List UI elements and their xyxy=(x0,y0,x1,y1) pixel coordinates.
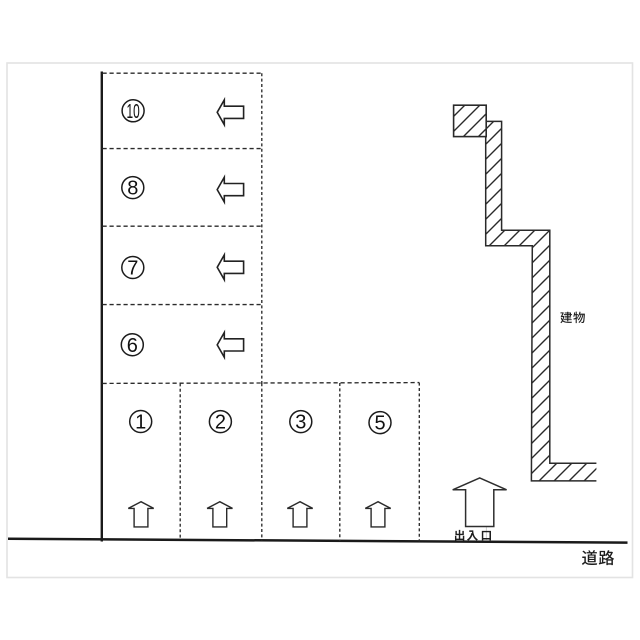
svg-text:2: 2 xyxy=(215,412,226,434)
svg-text:5: 5 xyxy=(374,413,385,435)
svg-text:10: 10 xyxy=(127,101,140,123)
svg-text:8: 8 xyxy=(127,178,138,200)
svg-text:1: 1 xyxy=(135,412,146,434)
svg-text:3: 3 xyxy=(295,412,306,434)
svg-text:6: 6 xyxy=(127,335,138,357)
svg-text:7: 7 xyxy=(127,258,138,280)
